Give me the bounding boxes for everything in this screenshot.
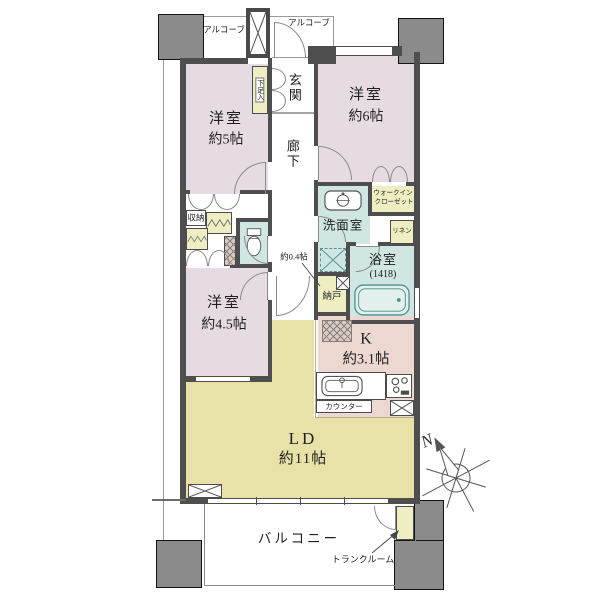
wall-wic-bottom bbox=[368, 212, 414, 216]
hallway-label: 廊下 bbox=[285, 139, 299, 169]
alcove-right-label: アルコーブ bbox=[288, 19, 330, 28]
hanger-pipe-icon bbox=[207, 213, 231, 233]
shoe-cabinet-label: 下足入 bbox=[255, 78, 264, 103]
wic-label-line1: ウォークイン bbox=[374, 191, 413, 198]
kitchen-step-hatch bbox=[322, 320, 352, 342]
closet-upper-bifold-icon bbox=[214, 194, 240, 210]
window-room45-bottom bbox=[196, 376, 252, 382]
closet-upper-bifold-icon bbox=[188, 194, 214, 210]
wic-label-line2: クローゼット bbox=[375, 200, 414, 207]
compass-north-label: N bbox=[417, 429, 438, 452]
window-bath-right bbox=[414, 288, 420, 318]
wall-bath-bottom bbox=[346, 320, 414, 324]
storeroom-label: 納戸 bbox=[322, 293, 341, 303]
room5-name-label: 洋室 bbox=[209, 112, 243, 128]
bath-name-label: 浴室 bbox=[369, 253, 397, 267]
kitchen-living-boundary-h bbox=[316, 417, 414, 418]
alcove-left-label: アルコーブ bbox=[203, 26, 245, 35]
bathtub-icon bbox=[354, 284, 410, 316]
living-floor-under-kitchen bbox=[314, 418, 414, 498]
entrance-label: 玄関 bbox=[287, 73, 301, 103]
kitchen-sink-icon bbox=[321, 374, 363, 398]
closet-label: 収納 bbox=[187, 214, 204, 223]
meter-box-x-icon bbox=[250, 12, 266, 54]
stove-icon bbox=[386, 374, 412, 398]
pipe-space-x-icon bbox=[337, 277, 349, 289]
trunk-room-label: トランクルーム bbox=[332, 555, 394, 564]
meter-box bbox=[246, 8, 270, 58]
wall-left bbox=[180, 58, 186, 504]
washer-pan-x-icon bbox=[321, 249, 345, 271]
wall-corridor-left-4 bbox=[268, 300, 272, 382]
wall-room6-bottom-b bbox=[406, 182, 414, 186]
linen-label: リネン bbox=[392, 229, 412, 236]
wall-corridor-right-3 bbox=[314, 242, 318, 320]
washroom-label: 洗面室 bbox=[323, 219, 364, 232]
shoe-cabinet-door-icon bbox=[272, 90, 286, 112]
living-name-label: LD bbox=[289, 430, 318, 448]
counter-label: カウンター bbox=[325, 403, 363, 411]
alcove-right-side-line bbox=[333, 16, 334, 48]
compass-rose: N bbox=[412, 422, 498, 518]
hanger-pipe-icon bbox=[187, 229, 207, 249]
pillar-top-left bbox=[158, 14, 204, 60]
balcony-label: バルコニー bbox=[258, 532, 340, 546]
room45-size-label: 約4.5帖 bbox=[201, 319, 247, 334]
floor-plan: アルコーブ アルコーブ 玄関 下足入 廊下 洋室 約5帖 洋室 約6帖 洋室 約… bbox=[0, 0, 600, 600]
boundary-line-left bbox=[163, 60, 164, 540]
living-size-label: 約11帖 bbox=[279, 452, 327, 468]
wall-stub-left-bottom bbox=[152, 499, 186, 501]
closet-lower-bifold-icon bbox=[186, 250, 208, 266]
shoe-cabinet-door-icon bbox=[272, 68, 286, 90]
washbasin-icon bbox=[324, 190, 362, 211]
pillar-top-right bbox=[398, 18, 444, 64]
wall-toilet-left bbox=[236, 218, 240, 268]
room6-name-label: 洋室 bbox=[349, 88, 383, 104]
bath-size-label: (1418) bbox=[370, 270, 397, 281]
window-room6-top bbox=[336, 46, 392, 56]
room6-size-label: 約6帖 bbox=[349, 111, 384, 126]
closet-lower bbox=[186, 228, 208, 250]
room45-name-label: 洋室 bbox=[207, 296, 241, 312]
room5-size-label: 約5帖 bbox=[209, 134, 244, 149]
closet-upper bbox=[206, 212, 232, 234]
living-equipment-x-icon bbox=[189, 485, 221, 497]
wall-room45-bottom-b bbox=[250, 376, 272, 382]
wall-storeroom-bottom bbox=[314, 312, 350, 316]
entrance-step-line bbox=[272, 112, 314, 114]
pillar-bottom-left bbox=[156, 540, 202, 588]
wall-corridor-right-1 bbox=[314, 64, 318, 146]
wall-top-left-seg bbox=[180, 58, 248, 64]
kitchen-size-label: 約3.1帖 bbox=[342, 352, 389, 367]
washer-pan bbox=[320, 248, 346, 272]
wall-entrance-corner bbox=[308, 46, 336, 64]
refrigerator-x-icon bbox=[391, 401, 413, 415]
kitchen-name-label: K bbox=[360, 332, 372, 349]
living-equipment-box bbox=[188, 484, 222, 498]
wall-room6-bottom-a bbox=[318, 182, 372, 186]
refrigerator-space bbox=[390, 400, 414, 416]
wall-corridor-left-2 bbox=[268, 194, 272, 236]
kitchen-counter bbox=[316, 372, 386, 400]
storeroom-size-label: 約0.4帖 bbox=[280, 253, 308, 262]
pipe-space-small bbox=[336, 276, 350, 290]
hall-living-door-arc bbox=[276, 276, 310, 316]
living-floor-column bbox=[272, 320, 314, 382]
wall-toilet-top bbox=[236, 218, 268, 222]
